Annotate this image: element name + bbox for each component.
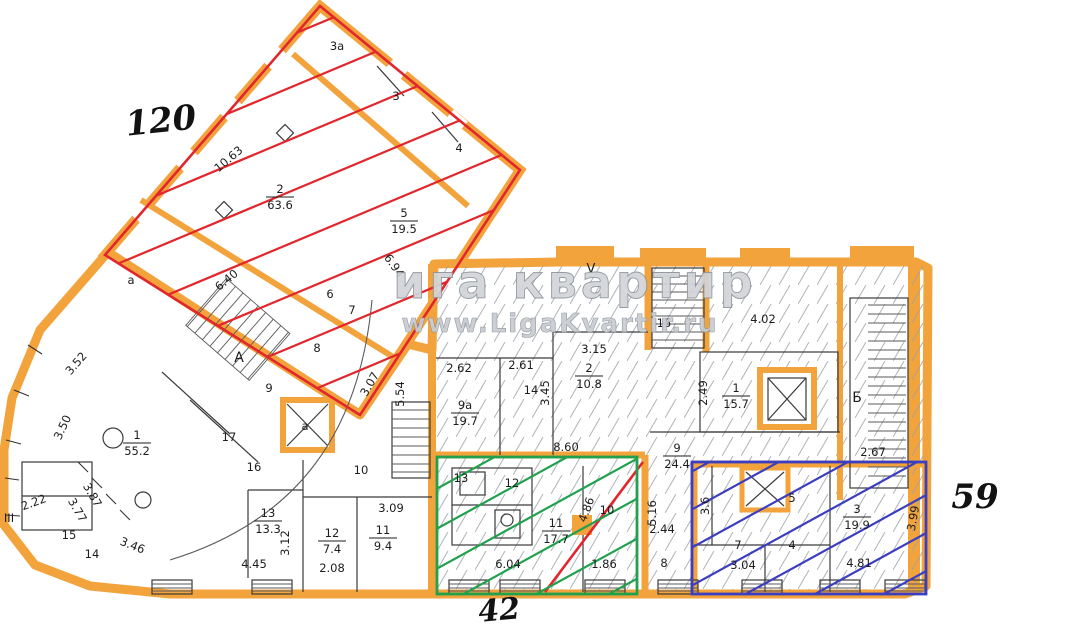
room-number-label: 5 bbox=[400, 206, 407, 220]
plan-label: Б bbox=[852, 390, 862, 406]
watermark-text: ига квартир bbox=[393, 255, 756, 309]
plan-label: 15 bbox=[62, 528, 77, 542]
plan-label: 10 bbox=[354, 463, 369, 477]
plan-label: 4 bbox=[788, 538, 795, 552]
plan-label: 4.45 bbox=[241, 557, 267, 571]
plan-label: 2.08 bbox=[319, 561, 345, 575]
plan-label: 5.54 bbox=[393, 381, 407, 407]
watermark-url: www.LigaKvartir.ru bbox=[401, 309, 718, 339]
plan-label: 14 bbox=[524, 383, 539, 397]
room-number-label: 2 bbox=[585, 361, 592, 375]
room-area-label: 19.5 bbox=[391, 222, 417, 236]
plan-label: 2.67 bbox=[860, 445, 886, 459]
plan-label: 5 bbox=[788, 491, 795, 505]
room-area-label: 24.4 bbox=[664, 457, 690, 471]
room-number-label: 9a bbox=[458, 398, 472, 412]
plan-label: 2.61 bbox=[508, 358, 534, 372]
plan-label: III bbox=[4, 511, 14, 525]
handwritten-blue-total: 59 bbox=[951, 477, 998, 517]
plan-label: a bbox=[301, 419, 308, 433]
room-number-label: 1 bbox=[732, 381, 739, 395]
plan-label: 4.02 bbox=[750, 312, 776, 326]
room-number-label: 3 bbox=[853, 502, 860, 516]
plan-label: 13 bbox=[454, 471, 469, 485]
room-area-label: 63.6 bbox=[267, 198, 293, 212]
room-number-label: 11 bbox=[549, 516, 564, 530]
room-area-label: 55.2 bbox=[124, 444, 150, 458]
room-number-label: 12 bbox=[325, 526, 340, 540]
plan-label: 10 bbox=[600, 503, 615, 517]
plan-label: 4.81 bbox=[846, 556, 872, 570]
room-area-label: 10.8 bbox=[576, 377, 602, 391]
room-number-label: 2 bbox=[276, 182, 283, 196]
plan-label: 14 bbox=[85, 547, 100, 561]
room-area-label: 9.4 bbox=[374, 539, 392, 553]
plan-label: 7 bbox=[734, 538, 741, 552]
plan-label: 8 bbox=[313, 341, 320, 355]
plan-label: 3a bbox=[330, 39, 344, 53]
plan-label: 17 bbox=[222, 430, 237, 444]
plan-label: 6.04 bbox=[495, 557, 521, 571]
plan-label: 8.60 bbox=[553, 440, 579, 454]
room-area-label: 19.7 bbox=[452, 414, 478, 428]
room-number-label: 9 bbox=[673, 441, 680, 455]
plan-label: 1.86 bbox=[591, 557, 617, 571]
plan-label: 2.44 bbox=[649, 522, 675, 536]
plan-label: 3.15 bbox=[581, 342, 607, 356]
handwritten-red-total: 120 bbox=[123, 97, 198, 144]
room-area-label: 17.7 bbox=[543, 532, 569, 546]
room-number-label: 13 bbox=[261, 506, 276, 520]
plan-label: 3 bbox=[392, 89, 399, 103]
floor-plan-drawing: 3a34263.6519.510.636.406.94678A9aa155.23… bbox=[0, 0, 1087, 635]
plan-label: 4 bbox=[455, 141, 462, 155]
room-area-label: 15.7 bbox=[723, 397, 749, 411]
plan-label: 2.62 bbox=[446, 361, 472, 375]
plan-label: 3.04 bbox=[730, 558, 756, 572]
floor-plan-page: 3a34263.6519.510.636.406.94678A9aa155.23… bbox=[0, 0, 1087, 635]
plan-label: 3.12 bbox=[278, 530, 292, 556]
plan-label: 2.49 bbox=[696, 380, 710, 406]
plan-label: 12 bbox=[505, 476, 520, 490]
room-area-label: 19.9 bbox=[844, 518, 870, 532]
room-area-label: 7.4 bbox=[323, 542, 341, 556]
plan-label: 9 bbox=[265, 381, 272, 395]
watermark: ига квартир www.LigaKvartir.ru bbox=[393, 255, 756, 339]
plan-label: 3.6 bbox=[698, 497, 712, 515]
plan-label: 16 bbox=[247, 460, 262, 474]
plan-label: 3.45 bbox=[538, 380, 552, 406]
plan-label: 8 bbox=[660, 556, 667, 570]
handwritten-green-total: 42 bbox=[477, 591, 522, 630]
plan-label: 3.09 bbox=[378, 501, 404, 515]
plan-label: 6 bbox=[326, 287, 333, 301]
room-number-label: 1 bbox=[133, 428, 140, 442]
plan-label: a bbox=[127, 273, 134, 287]
plan-label: 7 bbox=[348, 303, 355, 317]
plan-label: A bbox=[234, 350, 244, 366]
room-number-label: 11 bbox=[376, 523, 391, 537]
room-area-label: 13.3 bbox=[255, 522, 281, 536]
